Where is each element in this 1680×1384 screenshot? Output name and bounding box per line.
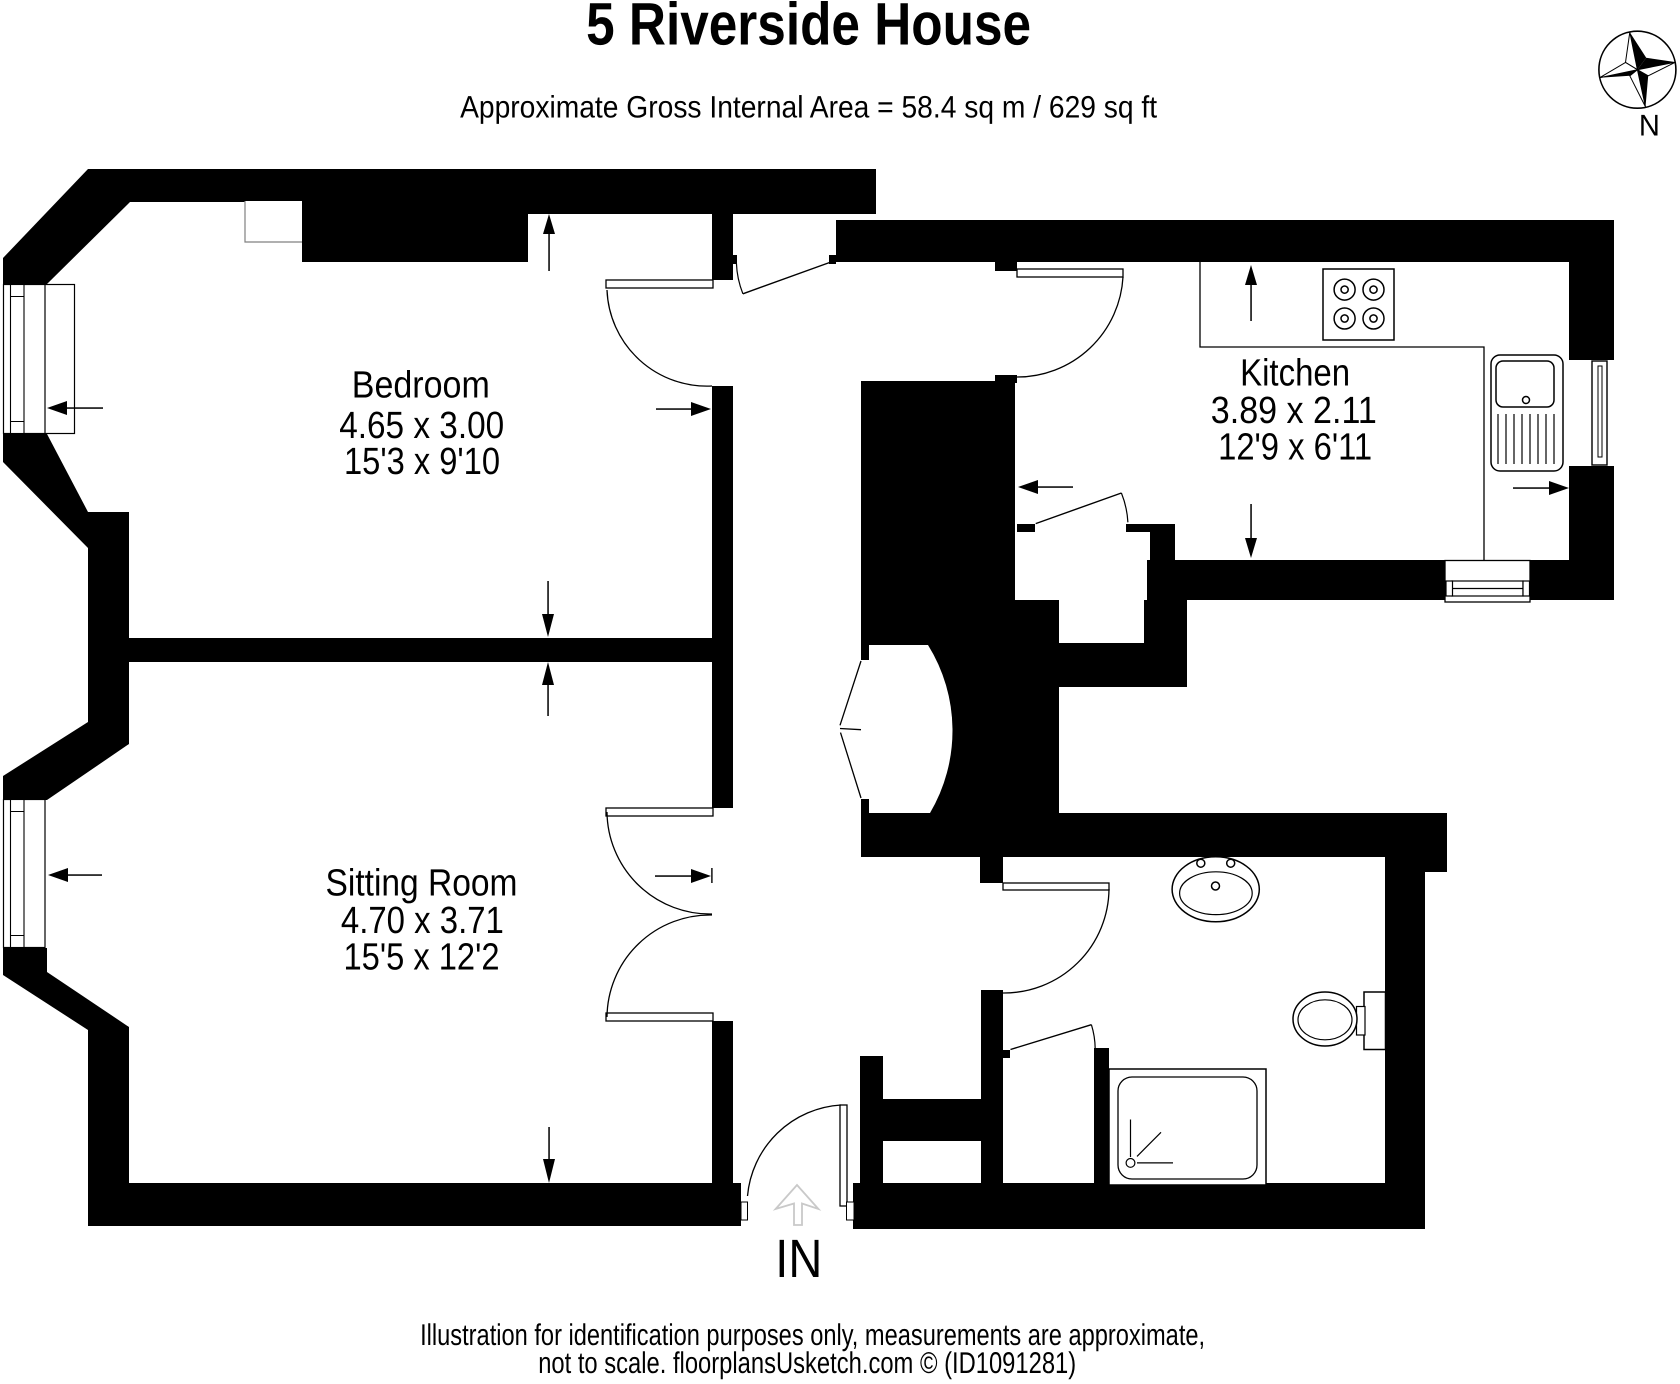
svg-text:5 Riverside House: 5 Riverside House xyxy=(586,0,1031,58)
svg-text:15'5 x 12'2: 15'5 x 12'2 xyxy=(344,937,500,979)
svg-text:N: N xyxy=(1639,110,1660,143)
svg-text:not to scale. floorplansUsketc: not to scale. floorplansUsketch.com © (I… xyxy=(538,1347,1076,1380)
svg-text:12'9 x 6'11: 12'9 x 6'11 xyxy=(1218,427,1372,469)
svg-text:Approximate Gross Internal Are: Approximate Gross Internal Area = 58.4 s… xyxy=(460,90,1157,125)
svg-text:15'3 x 9'10: 15'3 x 9'10 xyxy=(344,441,500,483)
svg-text:Sitting Room: Sitting Room xyxy=(326,862,518,904)
svg-text:IN: IN xyxy=(775,1229,822,1289)
svg-text:Kitchen: Kitchen xyxy=(1240,352,1350,394)
svg-text:Bedroom: Bedroom xyxy=(352,365,490,407)
